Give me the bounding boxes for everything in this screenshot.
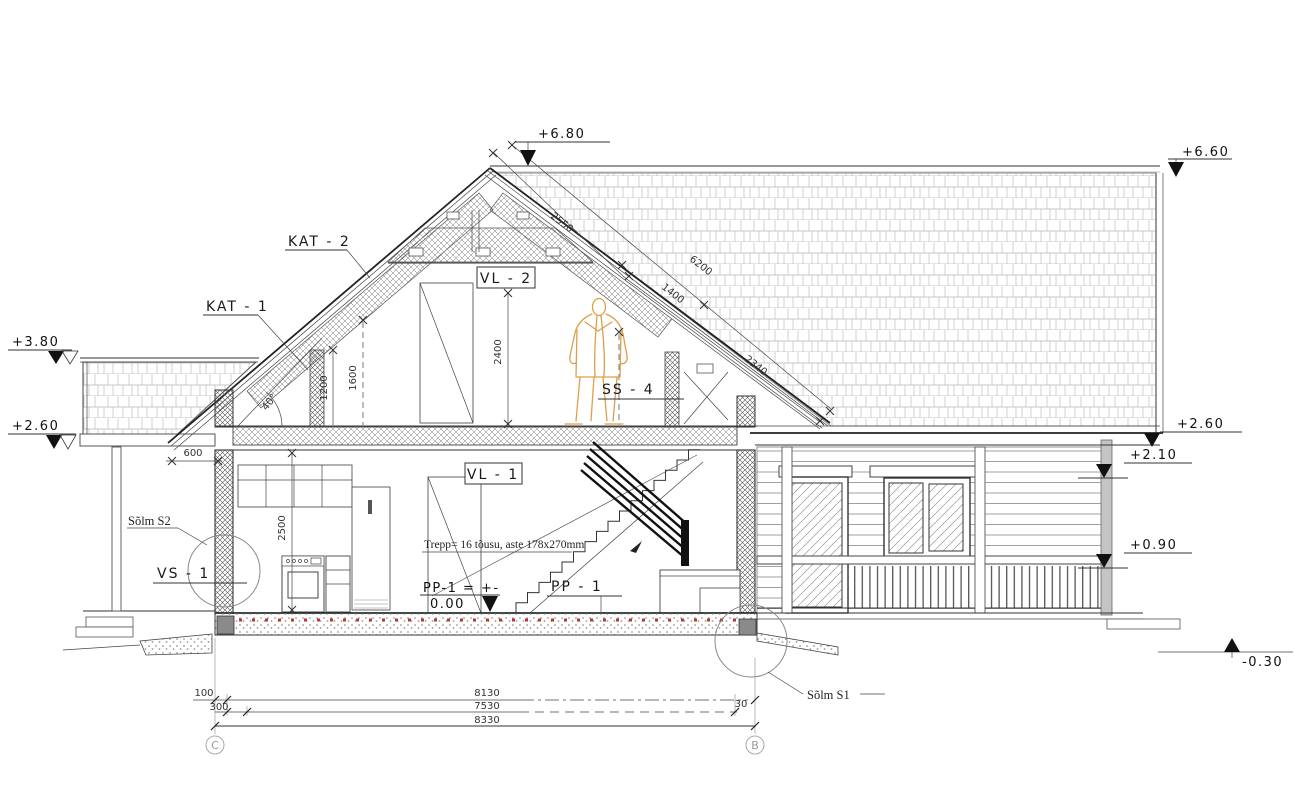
label-kat2: KAT - 2 xyxy=(288,234,351,250)
kitchen xyxy=(238,465,390,612)
level-eave-right: +2.60 xyxy=(1177,417,1224,432)
section-drawing-canvas: +6.80 +6.60 +3.80 +2.60 +2.60 xyxy=(0,0,1295,800)
dim-100: 100 xyxy=(194,688,213,699)
newel-post xyxy=(681,520,689,566)
level-railing-right: +0.90 xyxy=(1130,538,1177,553)
dim-300: 300 xyxy=(209,702,228,713)
level-marker-ground-right: -0.30 xyxy=(1224,638,1283,670)
terrace-deck xyxy=(757,613,1180,629)
level-floor-text-1: PP-1 = +- xyxy=(423,581,500,596)
label-vs1: VS - 1 xyxy=(157,566,210,582)
level-marker-parapet: +3.80 xyxy=(8,335,78,364)
level-soffit-right: +2.10 xyxy=(1130,448,1177,463)
upper-cabinets xyxy=(238,465,352,507)
dim-attic-height: 2400 xyxy=(493,339,504,364)
label-vl2: VL - 2 xyxy=(480,271,532,287)
grid-letter-c: C xyxy=(211,739,219,752)
level-parapet-top: +3.80 xyxy=(12,335,59,350)
grid-markers: C B xyxy=(206,736,764,754)
label-group-solm-s2: Sõlm S2 xyxy=(127,514,207,545)
window-sash-right xyxy=(929,484,963,551)
door-glazing xyxy=(792,483,842,607)
person-figure xyxy=(565,299,627,425)
porch-post-left xyxy=(782,447,792,613)
porch-step-2 xyxy=(76,627,133,637)
ground-apron-left xyxy=(140,634,212,655)
level-marker-canopy-left: +2.60 xyxy=(8,419,76,449)
cabinet-handle xyxy=(368,500,372,514)
wall-left-attic-stub xyxy=(215,390,233,427)
level-ridge-right: +6.60 xyxy=(1182,145,1229,160)
stair-handrail xyxy=(581,442,688,557)
level-ground-right: -0.30 xyxy=(1242,655,1283,670)
wall-left-cut xyxy=(215,450,233,613)
dim-floor-height: 2500 xyxy=(277,515,288,540)
window xyxy=(870,466,982,563)
foundation-block-right xyxy=(739,619,756,635)
dim-7530: 7530 xyxy=(474,701,499,712)
label-group-solm-s1: Sõlm S1 xyxy=(768,672,885,702)
label-group-vl1: VL - 1 xyxy=(465,463,522,484)
dim-eave-overhang: 600 xyxy=(183,448,202,459)
level-ridge-gable: +6.80 xyxy=(538,127,585,142)
label-group-vl2: VL - 2 xyxy=(477,267,535,288)
dim-knee-1200: 1200 xyxy=(319,375,330,400)
stair-direction-arrow xyxy=(630,541,642,553)
label-vl1: VL - 1 xyxy=(467,467,519,483)
label-pp1: PP - 1 xyxy=(551,579,603,595)
label-group-pp1: PP - 1 xyxy=(547,579,622,613)
dim-8130: 8130 xyxy=(474,688,499,699)
porch-step-1 xyxy=(86,617,133,627)
porch-post xyxy=(112,447,121,611)
architectural-section-drawing: +6.80 +6.60 +3.80 +2.60 +2.60 xyxy=(0,0,1295,800)
stove xyxy=(282,556,324,612)
foundation-block-left xyxy=(217,616,234,634)
main-roof-plane xyxy=(490,166,1163,433)
stair-note: Trepp= 16 tõusu, aste 178x270mm xyxy=(424,539,584,551)
level-floor-text-2: 0.00 xyxy=(430,597,465,612)
slab-heating-layer xyxy=(233,615,737,622)
level-canopy-left: +2.60 xyxy=(12,419,59,434)
level-marker-ridge-gable: +6.80 xyxy=(515,127,610,166)
drawer-unit xyxy=(326,556,350,612)
porch-canopy xyxy=(80,434,215,446)
label-group-kat2: KAT - 2 xyxy=(285,234,370,278)
level-marker-eave-right: +2.60 xyxy=(1144,417,1242,447)
label-kat1: KAT - 1 xyxy=(206,299,269,315)
wall-right-attic-stub xyxy=(737,396,755,427)
level-marker-ridge-right: +6.60 xyxy=(1168,145,1232,177)
right-wing-elevation xyxy=(750,426,1180,629)
knee-wall-right xyxy=(665,352,679,427)
porch-post-mid xyxy=(975,447,985,613)
label-ss4: SS - 4 xyxy=(602,382,655,398)
level-marker-floor-zero: PP-1 = +- 0.00 xyxy=(420,581,500,612)
window-sash-left xyxy=(889,483,923,553)
label-solm-s1: Sõlm S1 xyxy=(807,688,850,702)
label-solm-s2: Sõlm S2 xyxy=(128,514,171,528)
dim-8330: 8330 xyxy=(474,715,499,726)
ground-apron-right xyxy=(757,633,838,655)
grid-letter-b: B xyxy=(751,739,759,752)
attic-interior xyxy=(363,283,619,425)
stair-note-group: Trepp= 16 tõusu, aste 178x270mm xyxy=(422,539,584,552)
dim-30: 30 xyxy=(735,699,748,710)
dim-knee-1600: 1600 xyxy=(348,365,359,390)
